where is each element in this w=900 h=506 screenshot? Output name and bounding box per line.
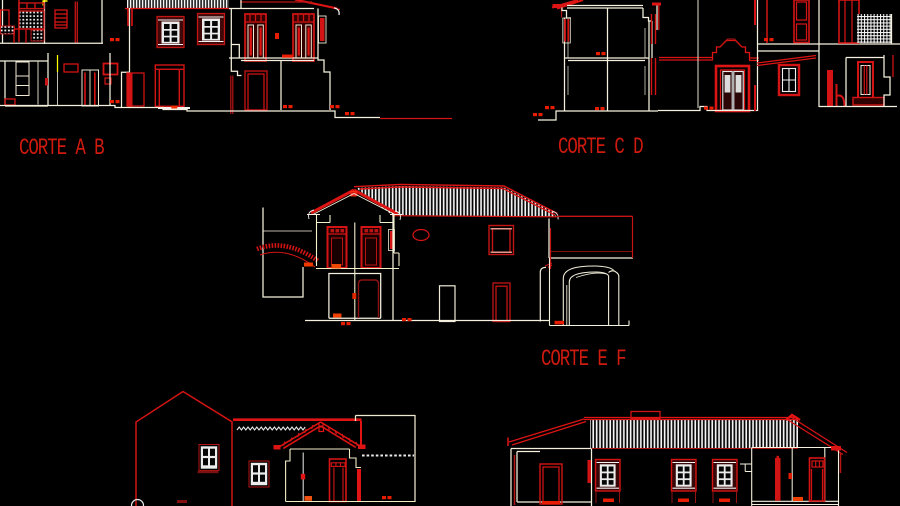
svg-text:CORTE E F: CORTE E F <box>541 347 626 373</box>
svg-text:CORTE C D: CORTE C D <box>558 135 644 161</box>
svg-text:CORTE A B: CORTE A B <box>19 136 105 162</box>
